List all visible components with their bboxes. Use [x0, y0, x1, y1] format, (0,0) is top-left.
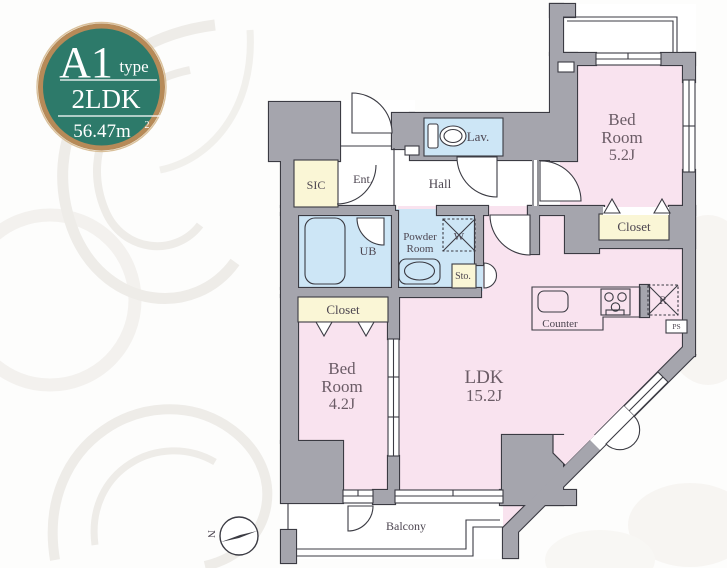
- washer-label: W: [454, 231, 465, 243]
- floorplan-canvas: Bed Room 5.2J Bed Room 4.2J LDK 15.2J Cl…: [0, 0, 727, 568]
- window-ldk-balcony: [395, 490, 503, 503]
- lav-label: Lav.: [467, 129, 490, 144]
- window-bedroom1-right: [683, 80, 695, 172]
- window-top-balcony: [596, 53, 661, 65]
- bedroom2-label: Bed: [328, 359, 356, 378]
- bedroom2-size: 4.2J: [329, 396, 355, 413]
- badge-plan-type: 2LDK: [72, 84, 141, 114]
- counter-label: Counter: [542, 318, 578, 330]
- unit-badge: A1 type 2LDK 56.47m 2: [37, 23, 166, 152]
- balcony-label: Balcony: [386, 519, 426, 533]
- entry-door: [352, 93, 392, 133]
- ldk-label: LDK: [464, 367, 503, 388]
- powder-label: Room: [407, 243, 434, 255]
- window-bedroom2-balcony: [343, 490, 373, 503]
- badge-area-exp: 2: [145, 120, 150, 131]
- powder-label: Powder: [403, 231, 437, 243]
- floorplan-page: { "badge": { "unit": "A1", "unit_suffix"…: [0, 0, 727, 568]
- bedroom1-label: Bed: [608, 110, 636, 129]
- closet-top-label: Closet: [617, 219, 651, 234]
- hall-label: Hall: [429, 176, 452, 191]
- sic-label: SIC: [307, 178, 326, 192]
- sto-label: Sto.: [455, 271, 471, 282]
- ps-label: PS: [672, 322, 680, 331]
- closet-left-label: Closet: [326, 302, 360, 317]
- ldk-size: 15.2J: [466, 386, 503, 405]
- bedroom2-label: Room: [321, 377, 363, 396]
- badge-unit-suffix: type: [119, 57, 148, 76]
- toilet-icon: [428, 124, 466, 148]
- bedroom1-size: 5.2J: [609, 147, 635, 164]
- compass-north-label: N: [205, 530, 217, 538]
- vent-box: [558, 62, 574, 72]
- bedroom1-label: Room: [601, 128, 643, 147]
- compass: [220, 517, 258, 555]
- ent-label: Ent.: [353, 172, 373, 186]
- fridge-label: R: [659, 293, 667, 307]
- sliding-door-bedroom2: [388, 339, 399, 456]
- meter-box: [405, 146, 419, 155]
- hall-partition: [532, 160, 539, 206]
- ub-label: UB: [360, 244, 377, 258]
- badge-area: 56.47m: [73, 121, 131, 142]
